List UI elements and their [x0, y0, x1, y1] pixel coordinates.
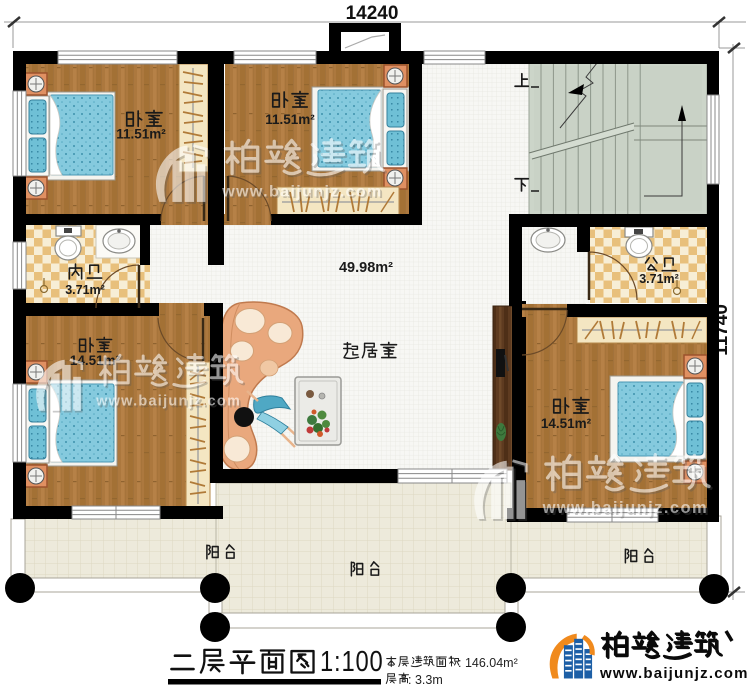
svg-text:: 146.04m²: : 146.04m²	[458, 656, 518, 670]
svg-text:3.71m²: 3.71m²	[639, 272, 679, 286]
svg-text:1:100: 1:100	[320, 645, 384, 678]
svg-text:14240: 14240	[346, 3, 399, 24]
svg-text:11.51m²: 11.51m²	[265, 112, 315, 127]
svg-text:: 3.3m: : 3.3m	[408, 673, 443, 687]
svg-text:49.98m²: 49.98m²	[339, 260, 393, 276]
svg-text:3.71m²: 3.71m²	[65, 283, 105, 297]
svg-text:www.baijunjz.com: www.baijunjz.com	[599, 665, 749, 682]
svg-text:14.51m²: 14.51m²	[541, 416, 592, 431]
svg-text:11.51m²: 11.51m²	[116, 127, 166, 142]
